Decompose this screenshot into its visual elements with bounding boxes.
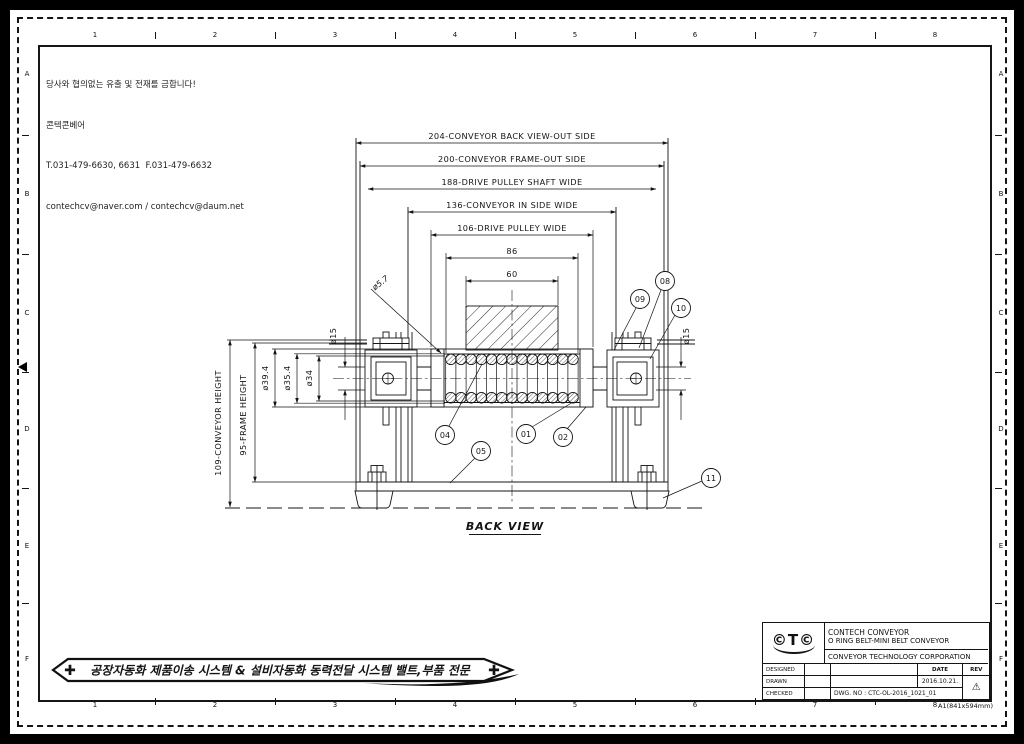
paper-sheet: 1 2 3 4 5 6 7 8 1 2 3 4 5 6 7 8 A B C D … [10, 10, 1014, 734]
zone-col: 2 [205, 701, 225, 709]
svg-text:11: 11 [706, 474, 716, 483]
svg-text:05: 05 [476, 447, 486, 456]
dim-label: ø34 [304, 370, 314, 387]
product-name: O RING BELT-MINI BELT CONVEYOR [828, 637, 949, 645]
zone-row: E [20, 542, 34, 550]
center-mark-icon [18, 362, 27, 372]
zone-col: 7 [805, 31, 825, 39]
balloon-11: 11 [702, 469, 721, 488]
zone-col: 3 [325, 31, 345, 39]
zone-col: 3 [325, 701, 345, 709]
balloon-05: 05 [472, 442, 491, 461]
checked-label: CHECKED [763, 688, 805, 700]
dim-label: 60 [506, 269, 517, 279]
revision-triangle-icon: ⚠ [963, 676, 990, 698]
balloon-04: 04 [436, 426, 455, 445]
corporation-name: CONVEYOR TECHNOLOGY CORPORATION [825, 650, 988, 664]
plus-icon: ✚ [488, 663, 500, 679]
date-label: DATE [918, 664, 963, 676]
date-value: 2016.10.21. [918, 676, 963, 688]
title-block: ©T© CONTECH CONVEYOR O RING BELT-MINI BE… [762, 622, 990, 700]
dim-label: 204-CONVEYOR BACK VIEW-OUT SIDE [428, 131, 595, 141]
dim-label: ø35.4 [282, 365, 292, 390]
foot-left [355, 491, 393, 508]
balloon-08: 08 [656, 272, 675, 291]
zone-col: 4 [445, 31, 465, 39]
zone-row: F [20, 655, 34, 663]
zone-row: B [20, 190, 34, 198]
svg-text:09: 09 [635, 295, 645, 304]
company-banner: ✚ ✚ 공장자동화 제품이송 시스템 & 설비자동화 동력전달 시스템 밸트,부… [46, 656, 524, 690]
zone-col: 1 [85, 701, 105, 709]
balloon-01: 01 [517, 425, 536, 444]
zone-row: A [994, 70, 1008, 78]
back-view-drawing: 04 01 02 05 09 08 10 11 204-CONVEYOR BAC… [205, 110, 730, 545]
zone-row: A [20, 70, 34, 78]
zone-col: 6 [685, 701, 705, 709]
dim-label: 109-CONVEYOR HEIGHT [213, 370, 223, 476]
view-title: BACK VIEW [466, 520, 544, 533]
zone-col: 1 [85, 31, 105, 39]
svg-text:08: 08 [660, 277, 670, 286]
svg-text:04: 04 [440, 431, 450, 440]
company-name: CONTECH CONVEYOR [828, 628, 909, 637]
zone-row: C [994, 309, 1008, 317]
zone-row: B [994, 190, 1008, 198]
zone-col: 8 [925, 31, 945, 39]
svg-text:01: 01 [521, 430, 531, 439]
zone-row: E [994, 542, 1008, 550]
zone-col: 7 [805, 701, 825, 709]
dim-label: 106-DRIVE PULLEY WIDE [457, 223, 567, 233]
zone-col: 4 [445, 701, 465, 709]
dwg-no: DWG. NO : CTC-OL-2016_1021_01 [831, 688, 963, 700]
dim-label: 86 [506, 246, 517, 256]
notice-line: 당사와 협의없는 유출 및 전재를 금합니다! [46, 79, 244, 93]
balloon-10: 10 [672, 299, 691, 318]
foot-right [631, 491, 669, 508]
zone-row: C [20, 309, 34, 317]
rev-label: REV [963, 664, 990, 676]
zone-col: 5 [565, 31, 585, 39]
zone-row: D [20, 425, 34, 433]
dim-label: ø5.7 [369, 273, 391, 293]
zone-row: F [994, 655, 1008, 663]
drawing-sheet: { "colors": {"line": "#141414", "paper":… [0, 0, 1024, 744]
zone-col: 2 [205, 31, 225, 39]
dim-label: ø39.4 [260, 365, 270, 390]
designed-label: DESIGNED [763, 664, 805, 676]
plus-icon: ✚ [64, 663, 76, 679]
zone-col: 6 [685, 31, 705, 39]
zone-col: 5 [565, 701, 585, 709]
drawn-label: DRAWN [763, 676, 805, 688]
banner-text: 공장자동화 제품이송 시스템 & 설비자동화 동력전달 시스템 밸트,부품 전문 [90, 664, 471, 678]
dim-label: ø15 [681, 328, 691, 345]
conveyor-structure [329, 138, 695, 510]
balloon-09: 09 [631, 290, 650, 309]
dim-label: ø15 [328, 328, 338, 345]
dim-label: 136-CONVEYOR IN SIDE WIDE [446, 200, 578, 210]
dim-label: 95-FRAME HEIGHT [238, 374, 248, 456]
dimensions [225, 143, 705, 508]
sheet-size-note: A1(841x594mm) [938, 702, 993, 710]
balloon-02: 02 [554, 428, 573, 447]
dim-label: 200-CONVEYOR FRAME-OUT SIDE [438, 154, 586, 164]
zone-row: D [994, 425, 1008, 433]
svg-text:10: 10 [676, 304, 686, 313]
svg-text:02: 02 [558, 433, 568, 442]
dim-label: 188-DRIVE PULLEY SHAFT WIDE [441, 177, 582, 187]
